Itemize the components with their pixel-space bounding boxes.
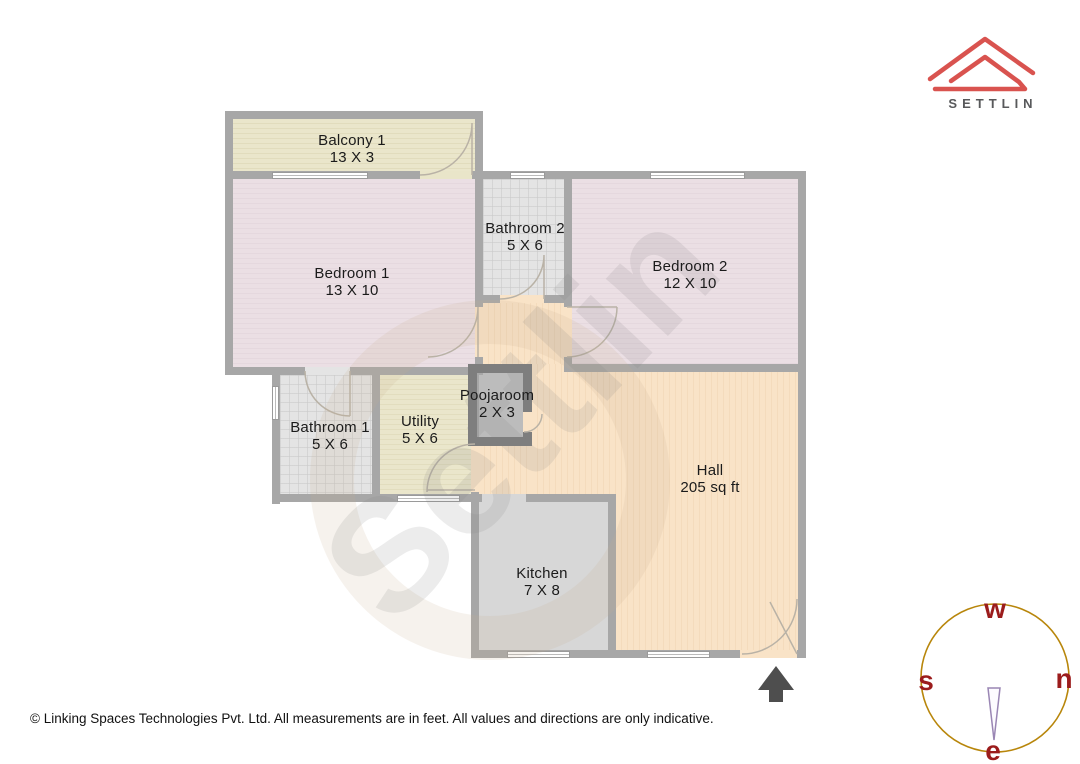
room-label-balcony1: Balcony 113 X 3 [292, 132, 412, 166]
room-label-bedroom1: Bedroom 113 X 10 [292, 265, 412, 299]
compass-label-e: e [985, 735, 1001, 764]
room-label-kitchen: Kitchen7 X 8 [482, 565, 602, 599]
door-arc-bedroom2 [567, 307, 617, 357]
compass-label-s: s [918, 665, 934, 696]
compass-label-w: w [983, 594, 1006, 624]
door-arc-utility [427, 444, 475, 492]
compass-label-n: n [1055, 663, 1072, 694]
room-label-hall: Hall205 sq ft [650, 462, 770, 496]
door-arc-bedroom1 [428, 307, 478, 357]
room-label-bedroom2: Bedroom 212 X 10 [630, 258, 750, 292]
brand-wordmark: SETTLIN [948, 96, 1038, 111]
door-arc-balcony [420, 123, 472, 175]
door-arc-entrance [742, 599, 797, 654]
room-label-poojaroom: Poojaroom2 X 3 [437, 387, 557, 421]
settlin-logo-icon [927, 33, 1039, 97]
compass-needle [988, 688, 1000, 740]
entrance-arrow-icon [752, 662, 800, 706]
door-arc-bathroom1 [305, 371, 350, 416]
room-label-bathroom2: Bathroom 25 X 6 [465, 220, 585, 254]
door-arc-bathroom2 [500, 255, 544, 299]
footer-copyright: © Linking Spaces Technologies Pvt. Ltd. … [30, 711, 714, 726]
compass: w s n e [913, 594, 1077, 764]
